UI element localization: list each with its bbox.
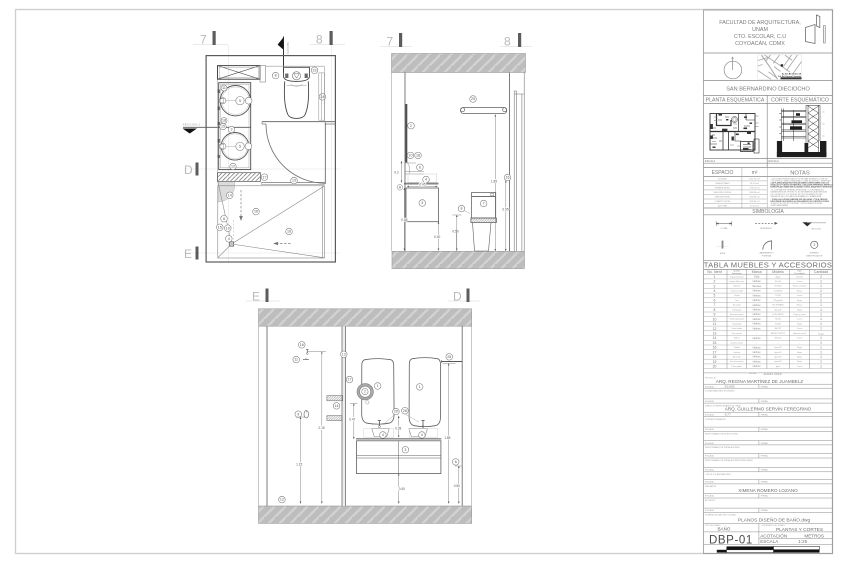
svg-text:20: 20 [713,365,717,369]
svg-text:Agata: Agata [776,275,781,278]
svg-text:ABATIMIENTO: ABATIMIENTO [760,252,774,255]
svg-text:EJES: EJES [720,253,726,255]
svg-text:-: - [756,343,757,345]
svg-text:7: 7 [387,35,394,49]
svg-text:ESPECIFICADO DEBE SER ACLARADO: ESPECIFICADO DEBE SER ACLARADO CON EL AR… [771,186,833,189]
svg-text:FIRMA: FIRMA [761,455,768,458]
svg-text:7: 7 [714,303,716,307]
svg-text:METROS: METROS [804,534,824,539]
svg-text:16: 16 [713,346,717,350]
svg-text:1: 1 [820,360,822,364]
svg-text:1: 1 [820,355,822,359]
svg-text:H-2045: H-2045 [775,324,781,326]
svg-text:Negro: Negro [797,357,802,359]
svg-text:FIRMA: FIRMA [761,400,768,403]
svg-text:1: 1 [820,341,822,345]
svg-text:m²: m² [752,170,758,176]
svg-text:ESCALA: ESCALA [705,455,714,458]
svg-text:Excusado: Excusado [733,305,741,307]
svg-text:Helvex: Helvex [753,293,762,297]
svg-text:16: 16 [287,230,291,234]
svg-text:-: - [799,342,800,344]
svg-text:ESCALA: ESCALA [705,428,714,431]
svg-text:2: 2 [820,289,822,293]
svg-text:PRIMER NIVEL: PRIMER NIVEL [715,188,731,190]
svg-text:ligero-99: ligero-99 [775,347,782,349]
svg-text:5: 5 [239,145,241,149]
svg-text:1.15: 1.15 [296,463,302,467]
svg-text:Negro: Negro [797,300,802,302]
svg-text:MK-Fog: MK-Fog [775,338,781,340]
svg-text:Negro: Negro [797,361,802,363]
svg-text:Cromo: Cromo [797,328,802,330]
svg-text:3: 3 [714,284,716,288]
svg-text:6177: 6177 [725,413,732,417]
svg-text:1: 1 [714,275,716,279]
svg-text:8: 8 [461,207,463,211]
svg-text:FIRMA: FIRMA [761,442,768,445]
svg-text:Negro: Negro [797,347,802,349]
svg-text:11: 11 [294,358,298,362]
svg-text:2.15: 2.15 [318,426,324,430]
svg-text:RESPONSABLE DE ESTRUCTURA: RESPONSABLE DE ESTRUCTURA [705,433,738,436]
svg-text:ESCALA: ESCALA [705,413,714,416]
svg-text:ARQ. REGINA MARTÍNEZ DE JUAMBE: ARQ. REGINA MARTÍNEZ DE JUAMBELZ [716,378,804,384]
svg-text:SEGUNDO NIVEL: SEGUNDO NIVEL [714,192,733,194]
svg-text:8: 8 [714,308,716,312]
svg-text:5: 5 [239,99,241,103]
svg-text:AZOTEA: AZOTEA [718,205,727,208]
svg-text:Kiro outro mixers: Kiro outro mixers [730,360,744,363]
svg-text:Helvex: Helvex [753,359,762,363]
svg-text:14: 14 [335,404,339,408]
svg-text:MEZMO PH/3712: MEZMO PH/3712 [771,333,785,335]
svg-text:-: - [778,342,779,344]
svg-text:1: 1 [820,336,822,340]
svg-text:NOMBRE DEL ARCHIVO DIGITAL: NOMBRE DEL ARCHIVO DIGITAL [705,513,737,516]
svg-text:0.2: 0.2 [394,171,399,175]
svg-text:17: 17 [263,175,267,179]
svg-text:FIRMA: FIRMA [761,509,768,512]
svg-text:SP-gogo26: SP-gogo26 [774,300,783,302]
svg-text:ESCALA: ESCALA [760,539,779,544]
svg-text:25: 25 [447,355,451,359]
svg-text:Helvex: Helvex [753,350,762,354]
svg-text:0.40: 0.40 [434,235,440,239]
svg-text:B-350 KB034: B-350 KB034 [773,314,784,316]
svg-text:1: 1 [820,322,822,326]
svg-text:Descripción: Descripción [732,272,742,275]
svg-text:3: 3 [421,201,423,205]
svg-text:ES-n06: ES-n06 [775,281,781,283]
svg-text:9: 9 [714,313,716,317]
svg-text:Cromo: Cromo [797,295,802,297]
svg-text:4: 4 [421,433,423,437]
svg-text:0.50: 0.50 [454,484,460,488]
svg-text:17: 17 [348,378,352,382]
svg-text:9: 9 [297,412,299,416]
svg-text:1: 1 [820,350,822,354]
svg-text:COTAS: COTAS [720,227,728,230]
svg-text:Accesorio ganch: Accesorio ganch [730,313,743,316]
svg-text:184.88 m2: 184.88 m2 [749,197,760,199]
svg-text:CUARTO NIVEL: CUARTO NIVEL [714,200,731,203]
svg-text:Helvex: Helvex [753,336,762,340]
svg-text:Helvex: Helvex [753,312,762,316]
svg-text:1: 1 [820,280,822,284]
svg-text:ESPACIO: ESPACIO [712,170,734,176]
svg-text:1: 1 [820,284,822,288]
svg-text:ESCALA: ESCALA [705,385,714,388]
svg-text:16: 16 [300,343,304,347]
svg-text:9/11459: 9/11459 [725,385,735,389]
svg-text:23: 23 [313,68,317,72]
svg-text:0.50: 0.50 [452,230,458,234]
svg-text:Helvex: Helvex [753,345,762,349]
svg-text:PENDIENTE: PENDIENTE [760,228,773,230]
svg-text:LV-WS384: LV-WS384 [774,290,782,292]
svg-text:WC MURANO: WC MURANO [772,304,784,307]
svg-text:1: 1 [820,346,822,350]
svg-text:Llave lavabo: Llave lavabo [732,328,742,330]
svg-text:8: 8 [504,35,511,49]
svg-text:UNAM: UNAM [752,27,768,33]
svg-text:COMPLEMENTARIAS: COMPLEMENTARIAS [771,204,789,207]
svg-text:TV-347: TV-347 [775,295,781,297]
svg-text:FECHA: FECHA [749,372,756,375]
svg-text:Helvex: Helvex [753,326,762,330]
svg-text:4: 4 [714,289,716,293]
svg-text:CTO. ESCOLAR, C.U: CTO. ESCOLAR, C.U [734,34,786,40]
svg-text:6: 6 [714,299,716,303]
svg-text:2: 2 [820,294,822,298]
svg-text:FACULTAD DE ARQUITECTURA,: FACULTAD DE ARQUITECTURA, [719,20,801,26]
svg-text:ESCALA: ESCALA [705,495,714,498]
svg-text:15: 15 [218,225,222,229]
svg-text:Helvex: Helvex [753,322,762,326]
svg-text:ESCALA: ESCALA [769,159,780,163]
svg-text:Marca: Marca [752,270,762,274]
svg-text:15: 15 [221,125,225,129]
svg-text:Modelo: Modelo [772,270,784,274]
svg-text:13: 13 [342,352,346,356]
svg-text:1: 1 [820,308,822,312]
svg-text:Blanco: Blanco [797,305,803,307]
svg-text:DIBUJANTE: DIBUJANTE [705,485,717,488]
svg-text:E: E [184,247,192,261]
svg-text:TERCER NIVEL: TERCER NIVEL [715,197,732,199]
svg-text:Negro: Negro [797,352,802,354]
svg-text:16: 16 [506,176,510,180]
svg-text:SAN BERNARDINO DIECIOCHO: SAN BERNARDINO DIECIOCHO [726,87,810,93]
svg-text:Rodera: Rodera [734,338,740,340]
svg-text:4: 4 [425,178,427,182]
svg-text:19: 19 [713,360,717,364]
svg-text:2: 2 [364,390,366,394]
svg-text:4: 4 [382,433,384,437]
svg-text:Negro: Negro [797,309,802,311]
svg-text:XIMENA ROMERO LOZANO: XIMENA ROMERO LOZANO [738,488,798,493]
svg-text:0.45: 0.45 [419,183,425,187]
svg-text:FIRMA: FIRMA [761,495,768,498]
svg-text:12: 12 [280,498,284,502]
svg-text:SECCIÓN: SECCIÓN [811,228,821,231]
svg-text:Helvex: Helvex [753,289,762,293]
svg-text:ESCALA: ESCALA [705,509,714,512]
svg-text:RESPONSABLE DE INSTALACIONES E: RESPONSABLE DE INSTALACIONES ESPECIALES [705,459,753,462]
svg-text:SECCION 1: SECCION 1 [183,123,201,127]
svg-text:1: 1 [820,327,822,331]
svg-text:Organizador: Organizador [732,324,742,326]
svg-text:Helvex: Helvex [753,279,762,283]
svg-text:2: 2 [714,280,716,284]
svg-text:NÚMERO: NÚMERO [810,252,820,255]
svg-text:ESCALA: ESCALA [705,159,716,163]
svg-text:Blanco y madera: Blanco y madera [793,286,806,288]
svg-text:Gabinete: Gabinete [733,285,740,288]
svg-text:232.76 m2: 232.76 m2 [749,179,760,181]
svg-text:Cuello organizador: Cuello organizador [729,319,744,321]
svg-text:Cromo: Cromo [797,338,802,340]
svg-text:Blanco: Blanco [797,290,803,292]
svg-text:SIMBOLOGÍA: SIMBOLOGÍA [752,208,784,215]
svg-text:COYOACÁN, CDMX: COYOACÁN, CDMX [735,40,785,47]
svg-text:0.28: 0.28 [395,427,401,431]
svg-text:FIRMA: FIRMA [761,385,768,388]
svg-text:ligero-99: ligero-99 [775,357,782,359]
svg-text:E: E [252,290,260,304]
svg-text:25: 25 [471,97,475,101]
svg-text:3: 3 [231,128,233,132]
svg-text:Coapel: Coapel [734,295,740,297]
svg-text:Helvex: Helvex [753,303,762,307]
svg-text:1: 1 [377,384,379,388]
svg-text:OTROS COLABORADORES: OTROS COLABORADORES [705,473,732,476]
svg-text:1: 1 [813,243,815,247]
svg-text:ESCALA: ESCALA [705,442,714,445]
svg-text:D: D [453,290,462,304]
svg-text:Portacepillos: Portacepillos [732,365,742,368]
svg-text:Helvex: Helvex [753,364,762,368]
svg-text:PLANOS DISEÑO DE BAÑO.dwg: PLANOS DISEÑO DE BAÑO.dwg [738,517,811,524]
svg-text:1.85: 1.85 [491,180,497,184]
svg-text:18: 18 [713,355,717,359]
svg-text:PUERTAS: PUERTAS [762,254,772,257]
svg-text:Portapapel: Portapapel [732,308,741,311]
svg-text:gibik: gibik [776,366,780,368]
svg-text:6: 6 [455,460,457,464]
svg-text:8: 8 [316,33,323,47]
svg-text:ligero-99: ligero-99 [775,352,782,354]
svg-text:Negro y cromo: Negro y cromo [794,314,806,316]
svg-text:Sensea: Sensea [752,284,761,288]
svg-text:11: 11 [713,322,717,326]
svg-text:DBP-01: DBP-01 [709,535,753,547]
svg-text:15: 15 [713,341,717,345]
svg-text:12: 12 [231,165,235,169]
svg-text:tom LED: tom LED [796,275,804,278]
svg-text:SEMISÓTANO: SEMISÓTANO [715,182,730,185]
svg-text:FIRMA: FIRMA [761,481,768,484]
svg-text:De acabado: De acabado [794,273,804,275]
svg-text:0.40: 0.40 [399,487,405,491]
svg-text:TB-024: TB-024 [775,319,781,321]
svg-text:Cromo: Cromo [797,319,802,321]
svg-text:COLABORADORES EN DISEÑO: COLABORADORES EN DISEÑO [705,389,735,392]
svg-text:AUTORIZÓ: AUTORIZÓ [705,499,716,502]
svg-text:184.88 m2: 184.88 m2 [749,201,760,203]
svg-text:2: 2 [410,124,412,128]
svg-text:Gala: Gala [754,275,760,279]
svg-text:Espejo de pared: Espejo de pared [730,276,743,278]
svg-text:adhesivo natural: adhesivo natural [793,332,807,335]
svg-text:D: D [184,163,193,177]
svg-text:14: 14 [228,193,232,197]
svg-text:13: 13 [713,332,717,336]
svg-text:1:25: 1:25 [798,539,807,544]
svg-text:RESPONSABLE DE INSTALACIONES: RESPONSABLE DE INSTALACIONES [705,446,740,449]
svg-text:IDENTIFICADOR: IDENTIFICADOR [806,254,823,257]
svg-text:SÓTANO: SÓTANO [718,178,727,181]
svg-text:Helvex: Helvex [753,308,762,312]
svg-text:ESCALA: ESCALA [705,469,714,472]
svg-text:16: 16 [254,210,258,214]
svg-text:Helvex: Helvex [753,317,762,321]
svg-text:No. Ident: No. Ident [707,270,722,274]
svg-text:11: 11 [222,86,226,90]
svg-text:ligero-99: ligero-99 [775,361,782,363]
svg-text:Tina: Tina [735,300,738,302]
svg-text:184.88 m2: 184.88 m2 [749,192,760,194]
svg-text:20: 20 [394,410,398,414]
svg-text:17: 17 [713,350,717,354]
svg-text:ESCALA: ESCALA [705,400,714,403]
svg-text:NOTAS: NOTAS [790,171,810,177]
svg-text:AV-129: AV-129 [775,327,781,330]
svg-text:CORRESPONSABLES: CORRESPONSABLES [705,418,726,421]
svg-text:BAÑO: BAÑO [717,526,730,532]
svg-text:1.85: 1.85 [444,436,450,440]
svg-text:Cubierta lavabo: Cubierta lavabo [731,289,744,292]
svg-text:TABLA MUEBLES Y ACCESORIOS: TABLA MUEBLES Y ACCESORIOS [704,261,833,270]
svg-text:10: 10 [409,154,413,158]
svg-text:Tarja y ducha: Tarja y ducha [731,333,742,335]
svg-text:10: 10 [713,317,717,321]
svg-text:7: 7 [200,33,207,47]
svg-text:7: 7 [483,202,485,206]
svg-text:FIRMA: FIRMA [761,413,768,416]
svg-text:-: - [756,333,757,335]
svg-text:1: 1 [820,313,822,317]
svg-text:26: 26 [403,409,407,413]
svg-text:Espejo doble vista: Espejo doble vista [730,280,745,283]
svg-text:92.19 m2: 92.19 m2 [750,183,760,185]
svg-text:1: 1 [820,303,822,307]
svg-text:Toallero: Toallero [734,347,740,349]
svg-text:6: 6 [419,165,421,169]
svg-text:Helvex: Helvex [753,298,762,302]
svg-text:18: 18 [222,119,226,123]
svg-text:5: 5 [714,294,716,298]
svg-text:8: 8 [275,74,277,78]
svg-text:FIRMA: FIRMA [761,469,768,472]
svg-text:4: 4 [228,237,230,241]
svg-text:24: 24 [320,95,324,99]
svg-text:12: 12 [713,327,717,331]
svg-text:0.85: 0.85 [401,218,407,222]
svg-text:2: 2 [820,298,822,302]
svg-text:FIRMA: FIRMA [761,428,768,431]
svg-text:0.95: 0.95 [502,208,508,212]
svg-text:1: 1 [419,385,421,389]
svg-text:2: 2 [820,275,822,279]
svg-text:Alcachofa: Alcachofa [733,356,741,359]
svg-text:20.02 m2: 20.02 m2 [750,206,760,208]
svg-text:Cantidad: Cantidad [814,270,828,274]
svg-text:Gancho: Gancho [734,352,740,354]
svg-text:2 hojas: 2 hojas [818,333,824,335]
svg-text:Cromo: Cromo [797,281,802,283]
svg-text:Remix60: Remix60 [774,286,781,288]
svg-text:18: 18 [416,154,420,158]
svg-text:0.47: 0.47 [349,418,355,422]
svg-text:10: 10 [226,226,230,230]
svg-text:ESCALA: ESCALA [705,481,714,484]
svg-text:Negro: Negro [797,324,802,326]
svg-text:Cortinero ducha: Cortinero ducha [730,341,743,344]
svg-text:INDICADOS EN LOS PLANOS DE ACA: INDICADOS EN LOS PLANOS DE ACABADOS Y AL… [771,195,822,198]
svg-text:13: 13 [292,179,296,183]
svg-text:3: 3 [404,448,406,452]
svg-text:Cromo: Cromo [797,366,802,368]
svg-text:SECCION 1: SECCION 1 [286,42,290,57]
svg-text:ARQ. GUILLERMO SERVÍN FEREGRIN: ARQ. GUILLERMO SERVÍN FEREGRINO [725,406,812,412]
svg-text:JULIO 2019: JULIO 2019 [763,372,781,376]
svg-text:179.23 m2: 179.23 m2 [749,188,760,190]
svg-text:1: 1 [820,317,822,321]
svg-text:PLANTA ESQUEMÁTICA: PLANTA ESQUEMÁTICA [706,97,765,104]
svg-text:ACOTACIÓN: ACOTACIÓN [760,533,787,539]
svg-text:ligero-99: ligero-99 [775,309,782,311]
svg-text:CORTE ESQUEMÁTICO: CORTE ESQUEMÁTICO [771,97,829,104]
svg-text:CONTENIDO DEL PLANO:: CONTENIDO DEL PLANO: [761,524,786,527]
svg-text:1: 1 [820,364,822,368]
svg-text:8: 8 [223,217,225,221]
svg-text:Helvex: Helvex [753,355,762,359]
svg-text:14: 14 [713,336,717,340]
